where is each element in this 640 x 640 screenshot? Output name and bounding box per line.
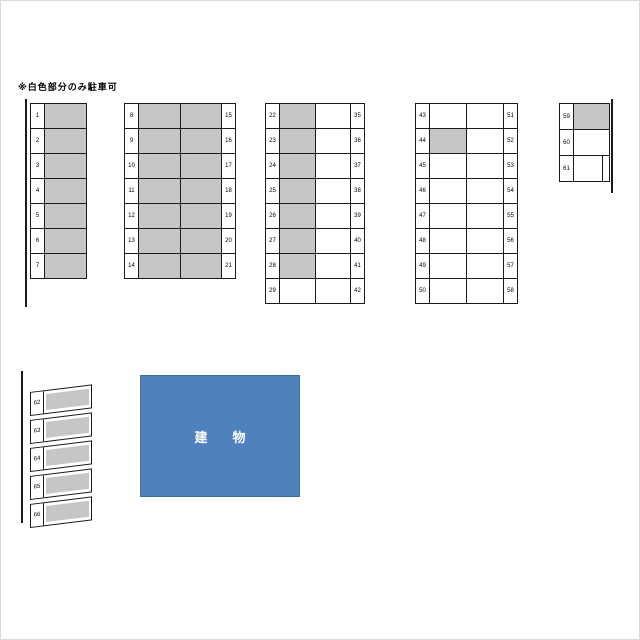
space-number: 53 — [503, 154, 517, 178]
parking-row: 4553 — [415, 153, 518, 179]
space-number: 49 — [416, 254, 430, 278]
parking-space-available — [430, 104, 466, 128]
space-number: 16 — [221, 129, 235, 153]
boundary-line-left — [25, 99, 27, 307]
parking-note: ※白色部分のみ駐車可 — [18, 80, 118, 93]
parking-row: 2841 — [265, 253, 365, 279]
space-number: 66 — [31, 503, 44, 527]
parking-space-available — [430, 179, 466, 203]
space-number: 44 — [416, 129, 430, 153]
space-number: 6 — [31, 229, 45, 253]
parking-space-unavailable — [180, 154, 222, 178]
parking-space-unavailable — [180, 104, 222, 128]
parking-space-available — [466, 279, 503, 303]
space-number: 39 — [350, 204, 364, 228]
space-number: 54 — [503, 179, 517, 203]
space-number: 18 — [221, 179, 235, 203]
space-number: 4 — [31, 179, 45, 203]
parking-space-unavailable — [46, 389, 89, 410]
parking-block-slanted: 6263646566 — [30, 384, 92, 528]
parking-space-unavailable — [46, 501, 89, 522]
parking-space-unavailable — [46, 445, 89, 466]
parking-space-available — [280, 279, 315, 303]
space-number: 22 — [266, 104, 280, 128]
parking-space-unavailable — [180, 229, 222, 253]
parking-row: 916 — [124, 128, 236, 154]
parking-space-unavailable — [180, 254, 222, 278]
space-number: 13 — [125, 229, 139, 253]
space-number: 9 — [125, 129, 139, 153]
space-number: 43 — [416, 104, 430, 128]
space-number: 62 — [31, 391, 44, 415]
parking-space-available — [315, 229, 351, 253]
space-number: 27 — [266, 229, 280, 253]
parking-row: 64 — [30, 440, 92, 472]
building: 建 物 — [140, 375, 300, 497]
parking-space-unavailable — [45, 129, 86, 153]
parking-space-available — [574, 130, 609, 155]
parking-block-3: 22352336243725382639274028412942 — [265, 104, 365, 304]
space-number: 40 — [350, 229, 364, 253]
parking-space-available — [466, 154, 503, 178]
space-number: 42 — [350, 279, 364, 303]
space-number: 36 — [350, 129, 364, 153]
space-number: 7 — [31, 254, 45, 278]
parking-space-available — [466, 229, 503, 253]
space-number: 61 — [560, 156, 574, 181]
parking-block-4: 43514452455346544755485649575058 — [415, 104, 518, 304]
parking-space-available — [430, 204, 466, 228]
space-number: 48 — [416, 229, 430, 253]
parking-space-unavailable — [430, 129, 466, 153]
parking-space-unavailable — [46, 473, 89, 494]
parking-row: 4856 — [415, 228, 518, 254]
space-number: 41 — [350, 254, 364, 278]
parking-space-unavailable — [139, 229, 180, 253]
space-number: 37 — [350, 154, 364, 178]
space-number: 21 — [221, 254, 235, 278]
space-number: 14 — [125, 254, 139, 278]
parking-row: 7 — [30, 253, 87, 279]
parking-space-unavailable — [280, 179, 315, 203]
parking-space-unavailable — [45, 254, 86, 278]
parking-row: 60 — [559, 129, 610, 156]
parking-block-2: 81591610171118121913201421 — [124, 104, 236, 279]
space-number: 24 — [266, 154, 280, 178]
parking-row: 2740 — [265, 228, 365, 254]
parking-space-unavailable — [45, 204, 86, 228]
parking-space-available — [430, 154, 466, 178]
parking-space-unavailable — [180, 204, 222, 228]
parking-space-available — [430, 229, 466, 253]
parking-space-unavailable — [139, 129, 180, 153]
space-number: 59 — [560, 104, 574, 129]
parking-space-unavailable — [45, 229, 86, 253]
parking-space-available — [315, 254, 351, 278]
parking-row: 4957 — [415, 253, 518, 279]
parking-row: 63 — [30, 412, 92, 444]
parking-row: 1 — [30, 103, 87, 129]
space-number: 23 — [266, 129, 280, 153]
parking-space-available — [315, 129, 351, 153]
parking-row: 815 — [124, 103, 236, 129]
parking-space-unavailable — [139, 204, 180, 228]
parking-space-available — [574, 156, 603, 181]
space-number: 55 — [503, 204, 517, 228]
space-number: 51 — [503, 104, 517, 128]
space-number: 11 — [125, 179, 139, 203]
parking-space-unavailable — [280, 204, 315, 228]
space-number: 50 — [416, 279, 430, 303]
space-number: 29 — [266, 279, 280, 303]
parking-block-5: 596061 — [559, 104, 610, 182]
parking-row: 1421 — [124, 253, 236, 279]
parking-row: 61 — [559, 155, 610, 182]
parking-row: 1219 — [124, 203, 236, 229]
parking-row: 6 — [30, 228, 87, 254]
space-number: 65 — [31, 475, 44, 499]
parking-space-available — [430, 254, 466, 278]
parking-row: 2336 — [265, 128, 365, 154]
space-number: 3 — [31, 154, 45, 178]
space-number: 38 — [350, 179, 364, 203]
page-frame — [0, 0, 640, 640]
space-number: 10 — [125, 154, 139, 178]
parking-row: 65 — [30, 468, 92, 500]
parking-space-unavailable — [574, 104, 609, 129]
parking-row: 4 — [30, 178, 87, 204]
space-number: 8 — [125, 104, 139, 128]
space-number: 45 — [416, 154, 430, 178]
space-number: 2 — [31, 129, 45, 153]
parking-space-unavailable — [139, 104, 180, 128]
space-number: 47 — [416, 204, 430, 228]
parking-space-available — [430, 279, 466, 303]
parking-space-unavailable — [180, 129, 222, 153]
parking-space-unavailable — [139, 154, 180, 178]
space-number: 25 — [266, 179, 280, 203]
space-number: 57 — [503, 254, 517, 278]
boundary-line-right — [611, 99, 613, 193]
space-number: 63 — [31, 419, 44, 443]
parking-space-available — [315, 279, 351, 303]
parking-row: 2942 — [265, 278, 365, 304]
space-number: 46 — [416, 179, 430, 203]
parking-space-available — [315, 104, 351, 128]
parking-space-available — [466, 204, 503, 228]
parking-space-available — [466, 104, 503, 128]
space-number: 19 — [221, 204, 235, 228]
parking-space-unavailable — [45, 154, 86, 178]
parking-block-1: 1234567 — [30, 104, 87, 279]
parking-space-available — [466, 254, 503, 278]
parking-space-unavailable — [180, 179, 222, 203]
parking-space-unavailable — [280, 129, 315, 153]
parking-row: 62 — [30, 384, 92, 416]
space-number: 5 — [31, 204, 45, 228]
parking-space-available — [466, 129, 503, 153]
parking-space-unavailable — [139, 179, 180, 203]
building-label: 建 物 — [188, 427, 251, 446]
space-number: 1 — [31, 104, 45, 128]
parking-row: 1320 — [124, 228, 236, 254]
space-number: 35 — [350, 104, 364, 128]
boundary-line-bottom-left — [21, 371, 23, 523]
parking-space-unavailable — [45, 179, 86, 203]
parking-row: 4452 — [415, 128, 518, 154]
parking-row: 4351 — [415, 103, 518, 129]
parking-space-unavailable — [139, 254, 180, 278]
space-number: 15 — [221, 104, 235, 128]
space-number: 17 — [221, 154, 235, 178]
parking-space-unavailable — [45, 104, 86, 128]
parking-space-unavailable — [280, 154, 315, 178]
space-number: 64 — [31, 447, 44, 471]
parking-row: 2437 — [265, 153, 365, 179]
space-number: 56 — [503, 229, 517, 253]
parking-row: 59 — [559, 103, 610, 130]
parking-space-unavailable — [46, 417, 89, 438]
space-number: 60 — [560, 130, 574, 155]
space-number: 20 — [221, 229, 235, 253]
parking-row: 5 — [30, 203, 87, 229]
parking-row: 2235 — [265, 103, 365, 129]
space-number: 58 — [503, 279, 517, 303]
parking-space-unavailable — [280, 104, 315, 128]
parking-space-available — [315, 154, 351, 178]
parking-row: 66 — [30, 496, 92, 528]
parking-space-available — [466, 179, 503, 203]
space-number: 28 — [266, 254, 280, 278]
space-number: 26 — [266, 204, 280, 228]
parking-row: 2639 — [265, 203, 365, 229]
parking-row: 3 — [30, 153, 87, 179]
parking-row: 2538 — [265, 178, 365, 204]
space-number: 12 — [125, 204, 139, 228]
parking-row: 4755 — [415, 203, 518, 229]
parking-space-unavailable — [280, 254, 315, 278]
parking-space-available — [315, 179, 351, 203]
space-number: 52 — [503, 129, 517, 153]
parking-space-unavailable — [280, 229, 315, 253]
parking-row: 4654 — [415, 178, 518, 204]
parking-row: 1017 — [124, 153, 236, 179]
parking-space-available — [315, 204, 351, 228]
parking-row: 5058 — [415, 278, 518, 304]
parking-row: 1118 — [124, 178, 236, 204]
parking-row: 2 — [30, 128, 87, 154]
